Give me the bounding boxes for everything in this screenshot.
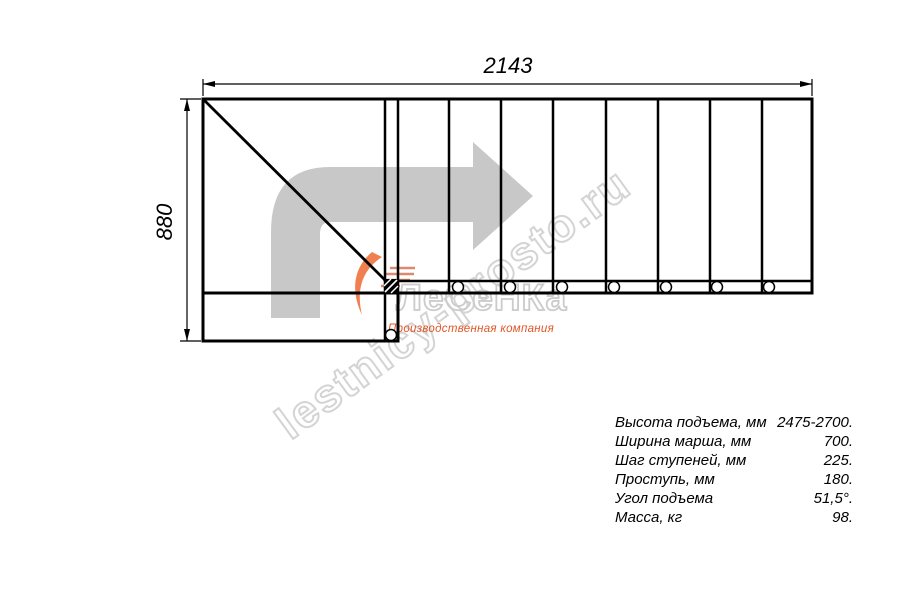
spec-value: 98. <box>832 508 853 527</box>
dimension-height-label: 880 <box>152 200 174 244</box>
spec-value: 180. <box>824 470 853 489</box>
hatched-corner <box>384 279 398 293</box>
spec-row: Шаг ступеней, мм 225. <box>615 451 853 470</box>
spec-label: Проступь, мм <box>615 470 715 489</box>
spec-row: Угол подъема 51,5°. <box>615 489 853 508</box>
spec-value: 2475-2700. <box>777 413 853 432</box>
spec-value: 700. <box>824 432 853 451</box>
step-dividers <box>449 99 762 293</box>
spec-label: Ширина марша, мм <box>615 432 751 451</box>
spec-row: Проступь, мм 180. <box>615 470 853 489</box>
stair-drawing-page: lestnicy-prosto.ru ЛеСеНКа Производствен… <box>0 0 900 600</box>
dimension-lines <box>180 79 812 341</box>
spec-value: 51,5°. <box>814 489 853 508</box>
spec-row: Высота подъема, мм 2475-2700. <box>615 413 853 432</box>
spec-value: 225. <box>824 451 853 470</box>
spec-label: Высота подъема, мм <box>615 413 767 432</box>
dimension-width-label: 2143 <box>428 53 588 79</box>
spec-row: Масса, кг 98. <box>615 508 853 527</box>
stair-outline <box>203 99 812 341</box>
spec-label: Угол подъема <box>615 489 713 508</box>
spec-label: Масса, кг <box>615 508 682 527</box>
dimension-arrowheads <box>184 81 812 341</box>
mount-holes <box>386 282 775 341</box>
spec-label: Шаг ступеней, мм <box>615 451 746 470</box>
spec-row: Ширина марша, мм 700. <box>615 432 853 451</box>
specs-table: Высота подъема, мм 2475-2700. Ширина мар… <box>615 413 853 527</box>
